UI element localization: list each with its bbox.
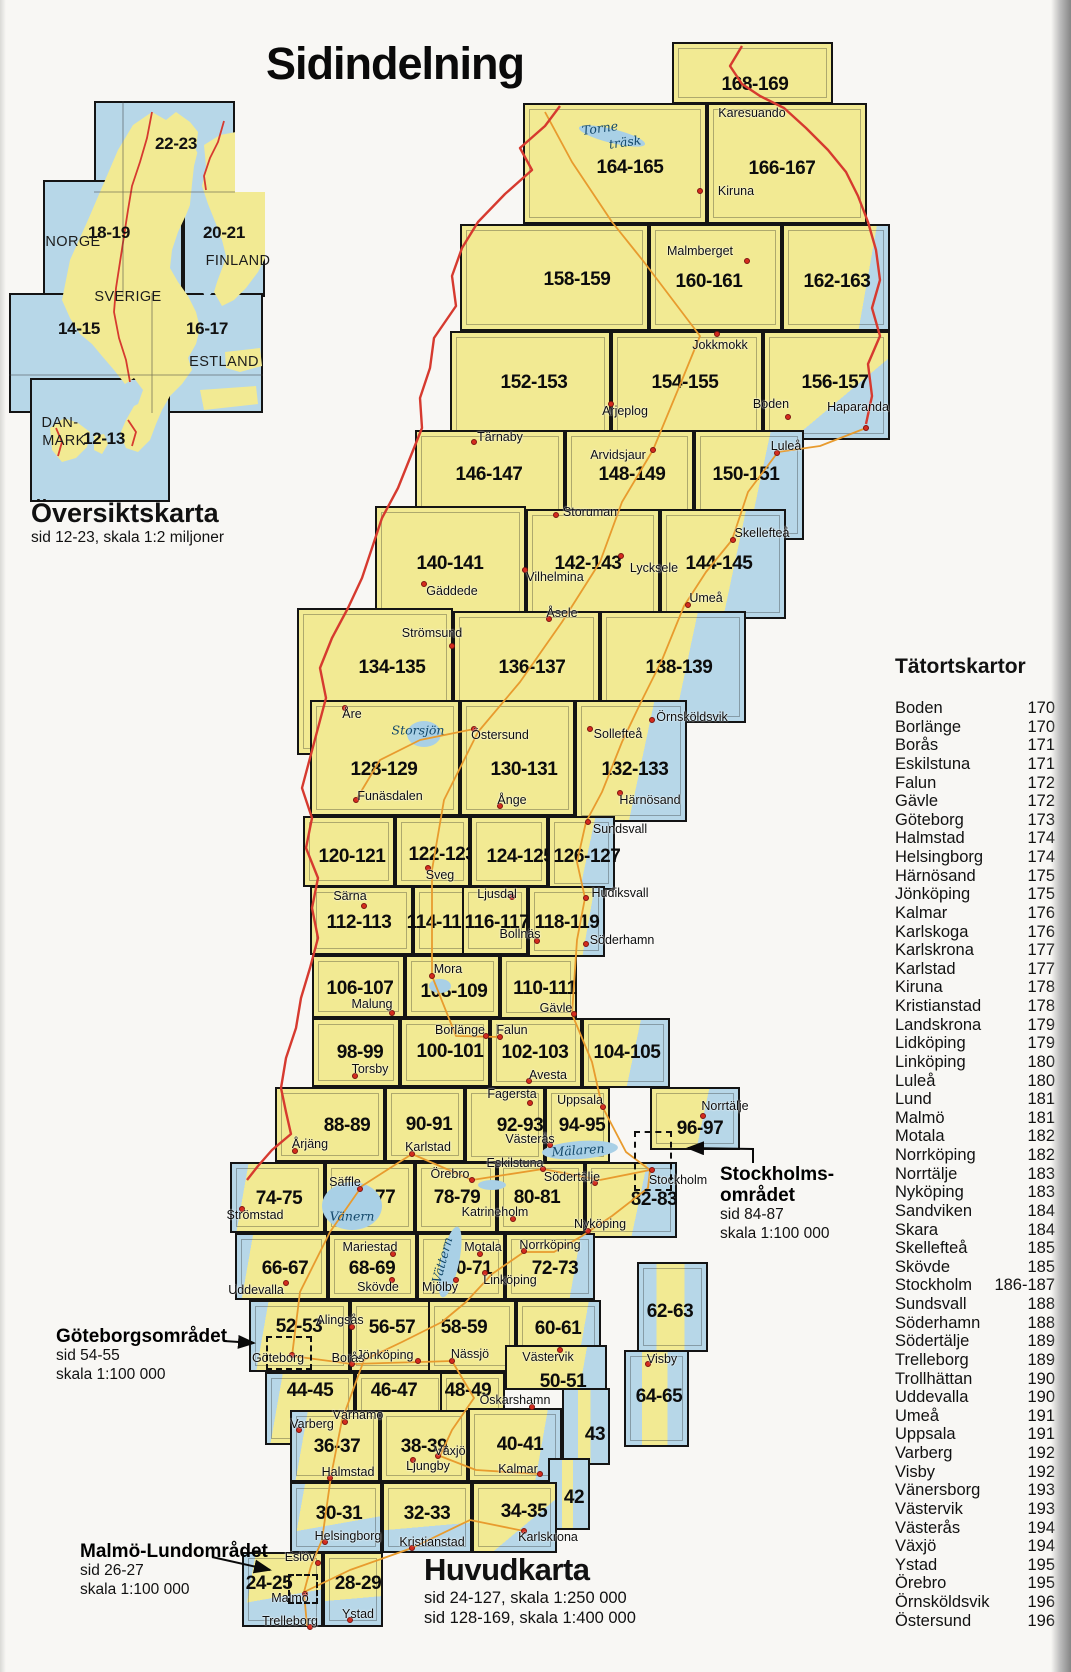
city-label-Gävle: Gävle — [540, 1001, 573, 1015]
map-cell-page-label: 30-31 — [316, 1503, 363, 1525]
malmo-callout-scale: skala 1:100 000 — [80, 1581, 268, 1600]
city-label-Eslöv: Eslöv — [285, 1550, 316, 1564]
city-label-Boden: Boden — [753, 397, 789, 411]
city-dot-Lycksele — [618, 553, 624, 559]
map-cell-74-75: 74-75 — [230, 1162, 325, 1233]
map-cell-page-label: 110-111 — [513, 978, 577, 1000]
map-cell-page-label: 152-153 — [501, 372, 568, 394]
city-label-Bollnäs: Bollnäs — [500, 927, 541, 941]
city-label-Torsby: Torsby — [352, 1062, 389, 1076]
map-cell-page-label: 28-29 — [335, 1573, 382, 1595]
stockholm-area-callout: Stockholms- området sid 84-87 skala 1:10… — [720, 1164, 834, 1243]
city-label-Jokkmokk: Jokkmokk — [692, 338, 748, 352]
city-dot-Sundsvall — [585, 819, 591, 825]
city-map-entry: Växjö194 — [895, 1537, 1055, 1556]
city-label-Haparanda: Haparanda — [827, 400, 889, 414]
city-label-Eskilstuna: Eskilstuna — [487, 1156, 544, 1170]
map-cell-page-label: 58-59 — [441, 1317, 488, 1339]
malmo-callout-title: Malmö-Lundområdet — [80, 1541, 268, 1562]
city-map-entry-name: Söderhamn — [895, 1314, 980, 1333]
map-cell-120-121: 120-121 — [303, 816, 395, 887]
city-map-entry: Trollhättan190 — [895, 1370, 1055, 1389]
map-cell-page-label: 52-53 — [276, 1316, 323, 1338]
city-map-entry-name: Jönköping — [895, 885, 970, 904]
city-label-Kristianstad: Kristianstad — [399, 1535, 464, 1549]
map-cell-page-label: 166-167 — [749, 158, 816, 180]
city-label-Norrköping: Norrköping — [519, 1238, 580, 1252]
city-map-entry-name: Trelleborg — [895, 1351, 969, 1370]
malmo-callout-pages: sid 26-27 — [80, 1562, 268, 1581]
map-cell-page-label: 144-145 — [686, 553, 753, 575]
city-map-entry-name: Västervik — [895, 1500, 963, 1519]
city-map-entry: Motala182 — [895, 1127, 1055, 1146]
city-label-Katrineholm: Katrineholm — [462, 1205, 529, 1219]
city-label-Skövde: Skövde — [357, 1280, 399, 1294]
city-map-entry-name: Karlstad — [895, 960, 956, 979]
city-label-Mariestad: Mariestad — [343, 1240, 398, 1254]
city-dot-Haparanda — [863, 425, 869, 431]
city-label-Östersund: Östersund — [471, 728, 529, 742]
city-label-Lycksele: Lycksele — [630, 561, 678, 575]
city-map-entry: Norrtälje183 — [895, 1165, 1055, 1184]
city-map-entry: Helsingborg174 — [895, 848, 1055, 867]
city-dot-Jönköping — [415, 1358, 421, 1364]
city-label-Jönköping: Jönköping — [357, 1348, 414, 1362]
city-label-Skellefteå: Skellefteå — [735, 526, 790, 540]
country-label: DAN- — [41, 415, 78, 431]
city-label-Åre: Åre — [342, 707, 361, 721]
city-map-entry-name: Helsingborg — [895, 848, 983, 867]
city-map-entry-name: Borlänge — [895, 718, 961, 737]
map-cell-page-label: 76-77 — [349, 1187, 396, 1209]
map-cell-page-label: 90-91 — [406, 1114, 453, 1136]
city-map-entry: Södertälje189 — [895, 1332, 1055, 1351]
map-cell-166-167: 166-167 — [707, 103, 867, 224]
map-cell-page-label: 66-67 — [262, 1258, 309, 1280]
map-cell-page-label: 130-131 — [491, 759, 558, 781]
city-map-entry: Gävle172 — [895, 792, 1055, 811]
city-label-Sundsvall: Sundsvall — [593, 822, 647, 836]
city-label-Halmstad: Halmstad — [322, 1465, 375, 1479]
city-map-entry: Luleå180 — [895, 1072, 1055, 1091]
inset-area-box-goteborg — [266, 1336, 312, 1370]
city-map-entry: Söderhamn188 — [895, 1314, 1055, 1333]
city-map-entry-name: Sundsvall — [895, 1295, 967, 1314]
city-label-Mjölby: Mjölby — [422, 1280, 458, 1294]
map-cell-page-label: 136-137 — [499, 657, 566, 679]
map-cell-page-label: 156-157 — [802, 372, 869, 394]
map-cell-page-label: 164-165 — [597, 157, 664, 179]
city-label-Norrtälje: Norrtälje — [701, 1099, 748, 1113]
city-map-entry: Vänersborg193 — [895, 1481, 1055, 1500]
city-map-entry: Kalmar176 — [895, 904, 1055, 923]
city-map-entry: Skara184 — [895, 1221, 1055, 1240]
city-map-entry-name: Borås — [895, 736, 938, 755]
city-label-Arvidsjaur: Arvidsjaur — [590, 448, 646, 462]
city-label-Mora: Mora — [434, 962, 462, 976]
city-map-entry-name: Halmstad — [895, 829, 965, 848]
city-label-Avesta: Avesta — [529, 1068, 567, 1082]
city-label-Nyköping: Nyköping — [574, 1217, 626, 1231]
city-label-Strömstad: Strömstad — [227, 1208, 284, 1222]
city-map-entry-name: Kristianstad — [895, 997, 981, 1016]
city-map-entry-name: Kalmar — [895, 904, 947, 923]
overview-heading: Översiktskarta — [31, 498, 224, 528]
map-cell-page-label: 108-109 — [421, 981, 488, 1003]
city-map-entry-name: Norrköping — [895, 1146, 976, 1165]
city-map-entry-name: Örnsköldsvik — [895, 1593, 989, 1612]
city-map-entry-name: Skellefteå — [895, 1239, 967, 1258]
city-label-Värnamo: Värnamo — [333, 1408, 384, 1422]
city-label-Luleå: Luleå — [771, 439, 802, 453]
city-dot-Örnsköldsvik — [649, 717, 655, 723]
city-map-entry: Boden170 — [895, 699, 1055, 718]
city-map-entry: Visby192 — [895, 1463, 1055, 1482]
map-cell-page-label: 126-127 — [554, 846, 621, 868]
city-map-entry: Kristianstad178 — [895, 997, 1055, 1016]
city-label-Uddevalla: Uddevalla — [228, 1283, 284, 1297]
city-label-Uppsala: Uppsala — [557, 1093, 603, 1107]
map-cell-152-153: 152-153 — [450, 331, 611, 440]
city-label-Örebro: Örebro — [431, 1167, 470, 1181]
city-map-entry-name: Karlskoga — [895, 923, 968, 942]
map-cell-page-label: 68-69 — [349, 1258, 396, 1280]
city-label-Malung: Malung — [352, 997, 393, 1011]
map-cell-page-label: 158-159 — [544, 269, 611, 291]
city-map-entry-name: Ystad — [895, 1556, 937, 1575]
map-cell-page-label: 160-161 — [676, 271, 743, 293]
city-map-entry: Västervik193 — [895, 1500, 1055, 1519]
map-cell-58-59: 58-59 — [428, 1300, 516, 1372]
city-map-entry-name: Eskilstuna — [895, 755, 970, 774]
city-map-entry: Eskilstuna171 — [895, 755, 1055, 774]
map-cell-104-105: 104-105 — [582, 1018, 670, 1088]
stockholm-callout-scale: skala 1:100 000 — [720, 1225, 834, 1244]
main-map-scale-line2: sid 128-169, skala 1:400 000 — [424, 1608, 636, 1628]
map-cell-page-label: 32-33 — [404, 1503, 451, 1525]
country-label: MARK — [42, 433, 86, 449]
lake-label-Vänern: Vänern — [330, 1209, 375, 1224]
overview-sheet-20-21 — [183, 192, 265, 297]
map-cell-page-label: 98-99 — [337, 1042, 384, 1064]
city-map-entry-page: 186-187 — [994, 1276, 1055, 1295]
map-cell-page-label: 150-151 — [713, 464, 780, 486]
map-cell-43: 43 — [562, 1388, 610, 1465]
goteborg-callout-pages: sid 54-55 — [56, 1347, 227, 1366]
city-map-entry-name: Malmö — [895, 1109, 945, 1128]
map-cell-page-label: 62-63 — [647, 1301, 694, 1323]
city-map-entry-name: Göteborg — [895, 811, 964, 830]
city-map-entry: Härnösand175 — [895, 867, 1055, 886]
city-map-entry-name: Lidköping — [895, 1034, 966, 1053]
city-label-Borlänge: Borlänge — [435, 1023, 485, 1037]
map-cell-page-label: 124-125 — [487, 846, 554, 868]
city-map-entry: Karlskrona177 — [895, 941, 1055, 960]
city-map-entry-name: Skara — [895, 1221, 938, 1240]
map-cell-page-label: 46-47 — [371, 1380, 418, 1402]
city-label-Gäddede: Gäddede — [426, 584, 477, 598]
goteborg-callout-title: Göteborgsområdet — [56, 1326, 227, 1347]
city-map-entry: Landskrona179 — [895, 1016, 1055, 1035]
city-map-entry-name: Vänersborg — [895, 1481, 980, 1500]
map-cell-160-161: 160-161 — [649, 224, 782, 331]
map-cell-page-label: 146-147 — [456, 464, 523, 486]
city-dot-Särna — [361, 903, 367, 909]
city-map-entry: Skellefteå185 — [895, 1239, 1055, 1258]
city-label-Helsingborg: Helsingborg — [315, 1529, 382, 1543]
city-map-entry-name: Gävle — [895, 792, 938, 811]
city-map-entry-name: Västerås — [895, 1519, 960, 1538]
map-cell-page-label: 74-75 — [256, 1188, 303, 1210]
map-cell-page-label: 112-113 — [327, 912, 392, 934]
country-label: NORGE — [45, 234, 100, 250]
city-label-Årjäng: Årjäng — [292, 1137, 328, 1151]
city-map-entry: Skövde185 — [895, 1258, 1055, 1277]
overview-sheet-label: 22-23 — [155, 134, 197, 154]
city-label-Tärnaby: Tärnaby — [477, 430, 523, 444]
city-map-entry-name: Nyköping — [895, 1183, 964, 1202]
map-cell-page-label: 56-57 — [369, 1317, 416, 1339]
city-label-Funäsdalen: Funäsdalen — [357, 789, 422, 803]
city-map-entry-name: Norrtälje — [895, 1165, 957, 1184]
malmo-lund-area-callout: Malmö-Lundområdet sid 26-27 skala 1:100 … — [80, 1541, 268, 1599]
map-cell-page-label: 96-97 — [677, 1118, 724, 1140]
city-label-Karlstad: Karlstad — [405, 1140, 451, 1154]
goteborg-callout-scale: skala 1:100 000 — [56, 1366, 227, 1385]
city-map-entry-name: Östersund — [895, 1612, 971, 1631]
map-cell-page-label: 168-169 — [722, 74, 789, 96]
city-map-entry: Varberg192 — [895, 1444, 1055, 1463]
city-map-entry: Linköping180 — [895, 1053, 1055, 1072]
scan-edge-right — [1051, 0, 1071, 1672]
city-map-entry-name: Trollhättan — [895, 1370, 972, 1389]
map-cell-page-label: 82-83 — [631, 1189, 678, 1211]
city-map-entry-name: Lund — [895, 1090, 932, 1109]
city-label-Sveg: Sveg — [426, 868, 455, 882]
city-map-entry-name: Umeå — [895, 1407, 939, 1426]
city-label-Nässjö: Nässjö — [451, 1347, 489, 1361]
map-cell-page-label: 132-133 — [602, 759, 669, 781]
city-label-Arjeplog: Arjeplog — [602, 404, 648, 418]
map-cell-page-label: 140-141 — [417, 553, 484, 575]
city-map-entry-name: Landskrona — [895, 1016, 981, 1035]
stockholm-callout-line1: Stockholms- — [720, 1164, 834, 1185]
city-map-entry-name: Varberg — [895, 1444, 952, 1463]
city-map-entry: Jönköping175 — [895, 885, 1055, 904]
map-cell-page-label: 100-101 — [417, 1041, 484, 1063]
city-map-entry: Falun172 — [895, 774, 1055, 793]
map-cell-page-label: 43 — [585, 1424, 605, 1446]
city-map-entry-name: Stockholm — [895, 1276, 972, 1295]
city-dot-Örebro — [469, 1177, 475, 1183]
city-label-Falun: Falun — [496, 1023, 527, 1037]
city-map-entry-name: Karlskrona — [895, 941, 974, 960]
city-map-entry: Norrköping182 — [895, 1146, 1055, 1165]
map-cell-page-label: 120-121 — [319, 846, 386, 868]
map-cell-62-63: 62-63 — [637, 1262, 708, 1352]
city-label-Västervik: Västervik — [522, 1350, 573, 1364]
map-cell-page-label: 138-139 — [646, 657, 713, 679]
map-cell-page-label: 94-95 — [559, 1115, 606, 1137]
map-cell-page-label: 60-61 — [535, 1318, 582, 1340]
city-map-entry: Karlskoga176 — [895, 923, 1055, 942]
city-map-entry: Halmstad174 — [895, 829, 1055, 848]
country-label: FINLAND — [206, 253, 271, 269]
city-label-Ljusdal: Ljusdal — [477, 887, 517, 901]
city-label-Kiruna: Kiruna — [718, 184, 754, 198]
city-map-entry-name: Falun — [895, 774, 936, 793]
main-map-scale-line1: sid 24-127, skala 1:250 000 — [424, 1588, 636, 1608]
city-maps-list: Boden170Borlänge170Borås171Eskilstuna171… — [895, 699, 1055, 1630]
city-label-Trelleborg: Trelleborg — [262, 1614, 318, 1628]
city-map-entry: Örnsköldsvik196 — [895, 1593, 1055, 1612]
city-dot-Arvidsjaur — [650, 447, 656, 453]
city-label-Säffle: Säffle — [329, 1175, 361, 1189]
city-map-entry: Trelleborg189 — [895, 1351, 1055, 1370]
city-dot-Storuman — [553, 512, 559, 518]
city-map-entry-name: Linköping — [895, 1053, 966, 1072]
overview-sheet-label: 20-21 — [203, 223, 245, 243]
city-map-entry: Lidköping179 — [895, 1034, 1055, 1053]
main-map-heading: Huvudkarta — [424, 1552, 636, 1588]
map-cell-page-label: 42 — [564, 1487, 584, 1509]
map-cell-page-label: 34-35 — [501, 1501, 548, 1523]
city-map-entry-name: Luleå — [895, 1072, 935, 1091]
city-map-entry: Göteborg173 — [895, 811, 1055, 830]
map-cell-page-label: 88-89 — [324, 1115, 371, 1137]
page-title: Sidindelning — [266, 38, 524, 90]
city-map-entry: Ystad195 — [895, 1556, 1055, 1575]
city-dot-Norrtälje — [700, 1113, 706, 1119]
map-cell-page-label: 44-45 — [287, 1380, 334, 1402]
city-label-Storuman: Storuman — [563, 505, 617, 519]
city-dot-Kiruna — [697, 188, 703, 194]
city-map-entry-name: Uddevalla — [895, 1388, 968, 1407]
map-cell-page-label: 36-37 — [314, 1436, 361, 1458]
map-cell-156-157: 156-157 — [763, 331, 890, 440]
city-label-Linköping: Linköping — [483, 1273, 537, 1287]
city-label-Södertälje: Södertälje — [544, 1170, 600, 1184]
city-label-Karesuando: Karesuando — [718, 106, 785, 120]
city-map-entry: Uddevalla190 — [895, 1388, 1055, 1407]
city-label-Visby: Visby — [647, 1352, 677, 1366]
city-map-entry: Lund181 — [895, 1090, 1055, 1109]
map-cell-162-163: 162-163 — [782, 224, 890, 331]
city-dot-Strömsund — [449, 643, 455, 649]
city-map-entry-name: Visby — [895, 1463, 935, 1482]
map-cell-page-label: 148-149 — [599, 464, 666, 486]
scan-edge-left — [0, 0, 6, 1672]
map-cell-168-169: 168-169 — [672, 42, 833, 104]
city-label-Motala: Motala — [464, 1240, 502, 1254]
goteborg-area-callout: Göteborgsområdet sid 54-55 skala 1:100 0… — [56, 1326, 227, 1384]
city-map-entry-name: Örebro — [895, 1574, 946, 1593]
inset-area-box-stockholm — [634, 1131, 672, 1191]
city-maps-heading: Tätortskartor — [895, 655, 1026, 679]
overview-subheading: sid 12-23, skala 1:2 miljoner — [31, 528, 224, 547]
city-map-entry: Stockholm186-187 — [895, 1276, 1055, 1295]
city-label-Karlskrona: Karlskrona — [518, 1530, 578, 1544]
city-dot-Söderhamn — [583, 941, 589, 947]
overview-caption: Översiktskarta sid 12-23, skala 1:2 milj… — [31, 498, 224, 547]
city-label-Strömsund: Strömsund — [402, 626, 462, 640]
city-label-Alingsås: Alingsås — [316, 1313, 363, 1327]
city-dot-Boden — [785, 414, 791, 420]
city-map-entry: Karlstad177 — [895, 960, 1055, 979]
map-cell-page-label: 162-163 — [804, 271, 871, 293]
map-cell-page-label: 122-123 — [409, 844, 476, 866]
map-cell-124-125: 124-125 — [470, 816, 548, 887]
city-map-entry-name: Sandviken — [895, 1202, 972, 1221]
map-cell-page-label: 118-119 — [535, 912, 600, 934]
city-map-entry: Östersund196 — [895, 1612, 1055, 1631]
city-label-Ånge: Ånge — [497, 793, 526, 807]
city-map-entry-name: Motala — [895, 1127, 945, 1146]
city-map-entry: Västerås194 — [895, 1519, 1055, 1538]
city-map-entry: Örebro195 — [895, 1574, 1055, 1593]
city-label-Oskarshamn: Oskarshamn — [480, 1393, 551, 1407]
city-map-entry-name: Härnösand — [895, 867, 976, 886]
city-label-Ystad: Ystad — [342, 1607, 374, 1621]
city-label-Åsele: Åsele — [546, 606, 577, 620]
map-cell-page-label: 64-65 — [636, 1386, 683, 1408]
map-cell-158-159: 158-159 — [460, 224, 649, 331]
city-map-entry-name: Södertälje — [895, 1332, 969, 1351]
city-map-entry: Malmö181 — [895, 1109, 1055, 1128]
city-label-Örnsköldsvik: Örnsköldsvik — [656, 710, 728, 724]
map-cell-page-label: 40-41 — [497, 1434, 544, 1456]
city-label-Umeå: Umeå — [689, 591, 722, 605]
city-label-Särna: Särna — [333, 889, 366, 903]
city-map-entry: Borlänge170 — [895, 718, 1055, 737]
lake-label-Storsjön: Storsjön — [392, 723, 445, 738]
city-map-entry-name: Uppsala — [895, 1425, 956, 1444]
city-dot-Jokkmokk — [714, 331, 720, 337]
map-cell-page-label: 134-135 — [359, 657, 426, 679]
city-dot-Sollefteå — [587, 726, 593, 732]
map-cell-page-label: 102-103 — [502, 1042, 569, 1064]
city-label-Sollefteå: Sollefteå — [594, 727, 643, 741]
city-map-entry-name: Skövde — [895, 1258, 950, 1277]
stockholm-callout-line2: området — [720, 1185, 834, 1206]
city-map-entry-name: Boden — [895, 699, 943, 718]
city-map-entry: Kiruna178 — [895, 978, 1055, 997]
map-cell-page-label: 72-73 — [532, 1258, 579, 1280]
city-map-entry: Sundsvall188 — [895, 1295, 1055, 1314]
map-cell-page-label: 154-155 — [652, 372, 719, 394]
city-dot-Hudiksvall — [583, 895, 589, 901]
country-label: SVERIGE — [94, 289, 161, 305]
city-label-Växjö: Växjö — [434, 1444, 465, 1458]
city-label-Söderhamn: Söderhamn — [590, 933, 655, 947]
city-map-entry-name: Växjö — [895, 1537, 936, 1556]
city-dot-Eslöv — [315, 1560, 321, 1566]
city-label-Härnösand: Härnösand — [619, 793, 680, 807]
country-label: ESTLAND — [189, 354, 259, 370]
main-map-caption: Huvudkarta sid 24-127, skala 1:250 000 s… — [424, 1552, 636, 1628]
city-label-Varberg: Varberg — [290, 1417, 334, 1431]
city-label-Västerås: Västerås — [505, 1132, 554, 1146]
city-label-Malmberget: Malmberget — [667, 244, 733, 258]
city-map-entry: Borås171 — [895, 736, 1055, 755]
city-label-Hudiksvall: Hudiksvall — [592, 886, 649, 900]
overview-sheet-label: 14-15 — [58, 319, 100, 339]
city-dot-Malmberget — [744, 258, 750, 264]
city-map-entry: Uppsala191 — [895, 1425, 1055, 1444]
city-label-Vilhelmina: Vilhelmina — [526, 570, 583, 584]
city-map-entry: Sandviken184 — [895, 1202, 1055, 1221]
map-cell-page-label: 104-105 — [594, 1042, 661, 1064]
